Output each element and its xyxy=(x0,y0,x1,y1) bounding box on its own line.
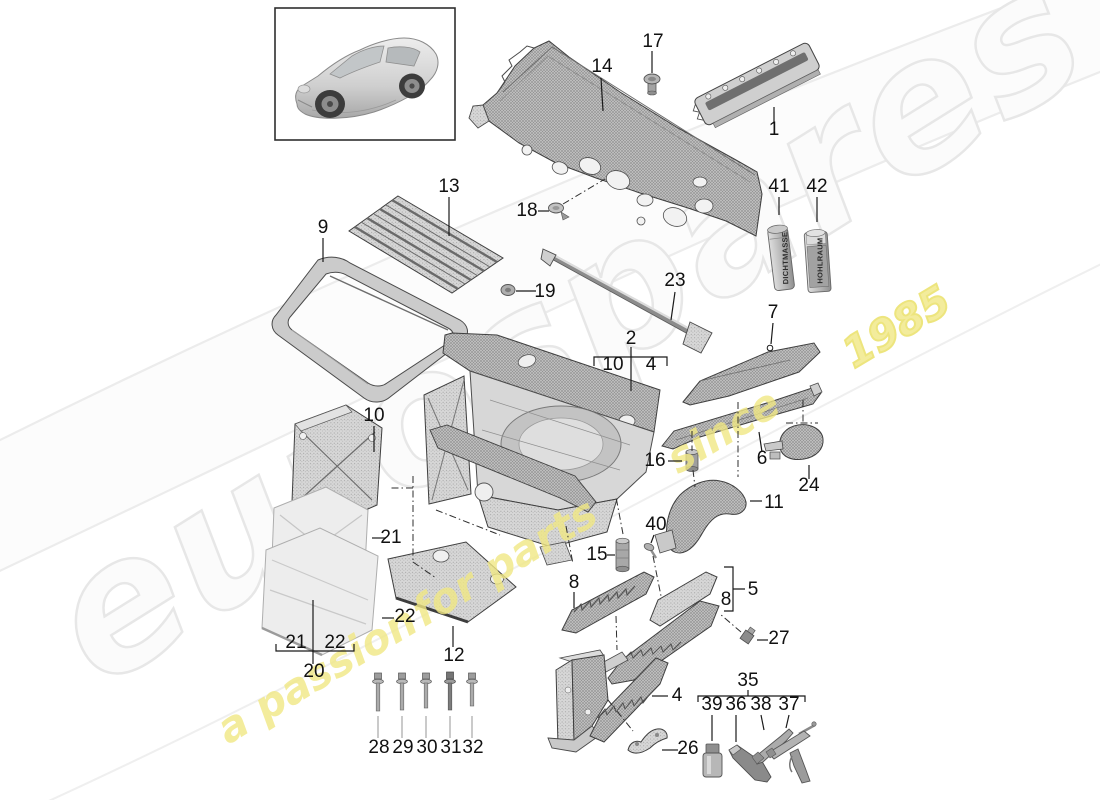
callout-17[interactable]: 17 xyxy=(642,31,663,52)
callout-15[interactable]: 15 xyxy=(586,544,607,565)
part-bracket-11 xyxy=(655,480,746,553)
part-bracket-24 xyxy=(764,425,823,460)
callout-6[interactable]: 6 xyxy=(757,448,768,469)
callout-13[interactable]: 13 xyxy=(438,176,459,197)
callout-27[interactable]: 27 xyxy=(768,628,789,649)
callout-35[interactable]: 35 xyxy=(737,670,758,691)
callout-37[interactable]: 37 xyxy=(778,694,799,715)
callout-5[interactable]: 5 xyxy=(748,579,759,600)
tube-42: HOHLRAUM xyxy=(804,229,831,293)
callout-10-left[interactable]: 10 xyxy=(363,405,384,426)
part-bracket-26 xyxy=(628,729,667,753)
tube-42-label: HOHLRAUM xyxy=(816,238,825,284)
tube-41-label: DICHTMASSE xyxy=(780,232,790,285)
callout-28[interactable]: 28 xyxy=(368,737,389,758)
callout-21-mid[interactable]: 21 xyxy=(380,527,401,548)
callout-4-bracket[interactable]: 4 xyxy=(646,354,657,375)
callout-12[interactable]: 12 xyxy=(443,645,464,666)
callout-16[interactable]: 16 xyxy=(644,450,665,471)
screw-17 xyxy=(644,74,660,95)
callout-8-bracket[interactable]: 8 xyxy=(721,589,732,610)
callout-2[interactable]: 2 xyxy=(626,328,637,349)
callout-30[interactable]: 30 xyxy=(416,737,437,758)
grommet-19 xyxy=(501,285,515,296)
screw-40 xyxy=(643,542,656,558)
callout-11[interactable]: 11 xyxy=(764,492,784,513)
rivet-30 xyxy=(421,673,432,708)
callout-9[interactable]: 9 xyxy=(318,217,329,238)
rivet-29 xyxy=(397,673,408,710)
vehicle-thumbnail xyxy=(275,8,455,140)
callout-36[interactable]: 36 xyxy=(725,694,746,715)
callout-7[interactable]: 7 xyxy=(768,302,779,323)
callout-39[interactable]: 39 xyxy=(701,694,722,715)
callout-8-left[interactable]: 8 xyxy=(569,572,580,593)
callout-42[interactable]: 42 xyxy=(806,176,827,197)
callout-4-bottom[interactable]: 4 xyxy=(672,685,683,706)
sleeve-15 xyxy=(616,538,629,572)
callout-40[interactable]: 40 xyxy=(645,514,666,535)
callout-23[interactable]: 23 xyxy=(664,270,685,291)
callout-19[interactable]: 19 xyxy=(534,281,555,302)
callout-1[interactable]: 1 xyxy=(769,119,780,140)
callout-31[interactable]: 31 xyxy=(440,737,461,758)
callout-32[interactable]: 32 xyxy=(462,737,483,758)
svg-text:1985: 1985 xyxy=(834,275,959,377)
tool-bottle-39 xyxy=(703,744,722,777)
callout-21-bracket[interactable]: 21 xyxy=(285,632,306,653)
callout-38[interactable]: 38 xyxy=(750,694,771,715)
callout-26[interactable]: 26 xyxy=(677,738,698,759)
callout-41[interactable]: 41 xyxy=(768,176,789,197)
callout-14[interactable]: 14 xyxy=(591,56,613,77)
parts-diagram-page: eurospares xyxy=(0,0,1100,800)
rivet-31 xyxy=(445,672,456,710)
callout-29[interactable]: 29 xyxy=(392,737,413,758)
callout-24[interactable]: 24 xyxy=(798,475,820,496)
callout-10-bracket[interactable]: 10 xyxy=(602,354,623,375)
callout-20[interactable]: 20 xyxy=(303,661,324,682)
rivet-32 xyxy=(467,673,478,706)
clip-27 xyxy=(740,626,757,644)
callout-22-bracket[interactable]: 22 xyxy=(324,632,345,653)
callout-22-mid[interactable]: 22 xyxy=(394,606,415,627)
rivet-28 xyxy=(373,673,384,711)
callout-18[interactable]: 18 xyxy=(516,200,537,221)
